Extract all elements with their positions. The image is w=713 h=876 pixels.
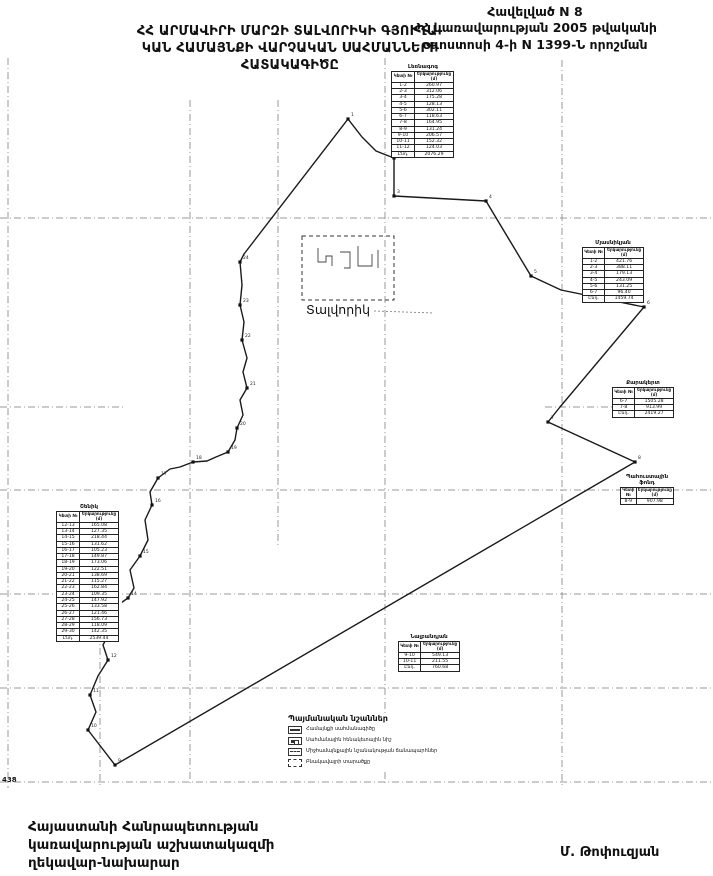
boundary-point-marker xyxy=(88,693,91,696)
table-header-row: Կետի №Երկարությունը (մ) xyxy=(399,642,460,653)
boundary-point-label: 21 xyxy=(250,381,256,387)
boundary-point-label: 18 xyxy=(196,455,202,461)
boundary-table-north: Լեռնագոգ Կետի №Երկարությունը (մ)1-2260.9… xyxy=(391,64,455,158)
boundary-point-label: 15 xyxy=(143,549,149,555)
boundary-table-east-mid: Քարակերտ Կետի №Երկարությունը (մ)6-71505.… xyxy=(612,380,674,418)
boundary-point-marker xyxy=(156,476,159,479)
boundary-point-label: 22 xyxy=(245,333,251,339)
point-number-header: Կետի № xyxy=(613,388,635,399)
boundary-point-marker xyxy=(240,338,243,341)
table-title: Շենիկ xyxy=(56,504,122,510)
table-row: Ընդ.2419.27 xyxy=(613,411,674,417)
segment-length-header: Երկարությունը (մ) xyxy=(80,512,119,523)
point-number-header: Կետի № xyxy=(621,488,637,499)
segment-length-header: Երկարությունը (մ) xyxy=(421,642,460,653)
boundary-point-marker xyxy=(86,728,89,731)
legend-label: Բնակավայրի տարածքը xyxy=(306,760,370,766)
boundary-point-marker xyxy=(392,194,395,197)
boundary-point-marker xyxy=(238,303,241,306)
boundary-point-marker xyxy=(484,199,487,202)
table-header-row: Կետի №Երկարությունը (մ) xyxy=(392,72,454,83)
boundary-point-marker xyxy=(226,450,229,453)
boundary-length-table: Կետի №Երկարությունը (մ)8-9907.98 xyxy=(620,487,674,505)
built-up-block-outline xyxy=(318,248,332,266)
boundary-length-table: Կետի №Երկարությունը (մ)6-71505.287-8913.… xyxy=(612,387,674,418)
built-up-block-outline xyxy=(340,252,350,268)
legend-item: Միջհամայնքային նշանակության ճանապարհներ xyxy=(288,748,448,756)
boundary-point-label: 19 xyxy=(231,445,237,451)
settlement-area-icon xyxy=(288,759,302,767)
point-number-cell: Ընդ. xyxy=(57,635,80,641)
legend-label: Միջհամայնքային նշանակության ճանապարհներ xyxy=(306,749,437,755)
boundary-point-label: 5 xyxy=(534,269,537,275)
legend-item: Բնակավայրի տարածքը xyxy=(288,759,448,767)
boundary-point-label: 10 xyxy=(91,723,97,729)
point-number-cell: Ընդ. xyxy=(399,665,421,671)
boundary-table-west: Շենիկ Կետի №Երկարությունը (մ)12-13165.08… xyxy=(56,504,122,642)
legend-title: Պայմանական նշաններ xyxy=(288,714,448,723)
segment-length-header: Երկարությունը (մ) xyxy=(415,72,454,83)
segment-length-cell: 907.98 xyxy=(636,498,673,504)
table-row: Ընդ.760.68 xyxy=(399,665,460,671)
benchmark-icon xyxy=(288,737,302,745)
boundary-length-table: Կետի №Երկարությունը (մ)12-13165.0813-141… xyxy=(56,511,119,642)
table-title: Քարակերտ xyxy=(612,380,674,386)
point-number-header: Կետի № xyxy=(583,248,605,259)
boundary-length-table: Կետի №Երկարությունը (մ)1-2421.762-3388.1… xyxy=(582,247,644,303)
segment-length-cell: 2419.27 xyxy=(635,411,674,417)
boundary-point-label: 23 xyxy=(243,298,249,304)
boundary-point-marker xyxy=(235,426,238,429)
segment-length-cell: 1459.74 xyxy=(605,296,644,302)
table-row: Ընդ.2076.29 xyxy=(392,151,454,157)
boundary-point-marker xyxy=(138,554,141,557)
boundary-point-label: 12 xyxy=(111,653,117,659)
segment-length-cell: 760.68 xyxy=(421,665,460,671)
point-number-header: Կետի № xyxy=(57,512,80,523)
boundary-point-marker xyxy=(113,763,116,766)
legend-item: Սահմանային հենակետային նիշ xyxy=(288,737,448,745)
boundary-point-marker xyxy=(245,386,248,389)
legend-label: Համայնքի սահմանագիծը xyxy=(306,727,375,733)
point-number-cell: Ընդ. xyxy=(613,411,635,417)
table-row: Ընդ.1459.74 xyxy=(583,296,644,302)
boundary-point-marker xyxy=(106,658,109,661)
built-up-block-outline xyxy=(358,246,372,266)
segment-length-header: Երկարությունը (մ) xyxy=(636,488,673,499)
table-header-row: Կետի №Երկարությունը (մ) xyxy=(613,388,674,399)
boundary-point-marker xyxy=(126,596,129,599)
boundary-point-marker xyxy=(191,460,194,463)
boundary-point-label: 8 xyxy=(638,455,641,461)
boundary-point-label: 7 xyxy=(551,415,554,421)
legend-label: Սահմանային հենակետային նիշ xyxy=(306,738,392,744)
boundary-table-east-upper: Մյասնիկյան Կետի №Երկարությունը (մ)1-2421… xyxy=(582,240,644,303)
boundary-point-label: 1 xyxy=(351,112,354,118)
boundary-point-label: 6 xyxy=(647,300,650,306)
segment-length-cell: 2076.29 xyxy=(415,151,454,157)
table-header-row: Կետի №Երկարությունը (մ) xyxy=(57,512,119,523)
boundary-point-label: 3 xyxy=(397,189,400,195)
boundary-point-marker xyxy=(238,260,241,263)
boundary-point-marker xyxy=(150,503,153,506)
settlement-label: Տալվորիկ xyxy=(306,302,370,317)
boundary-point-label: 14 xyxy=(131,591,137,597)
point-number-cell: 8-9 xyxy=(621,498,637,504)
boundary-length-table: Կետի №Երկարությունը (մ)1-2260.972-3312.0… xyxy=(391,71,454,158)
table-title: Մյասնիկյան xyxy=(582,240,644,246)
boundary-point-label: 11 xyxy=(93,688,99,694)
boundary-point-marker xyxy=(546,420,549,423)
table-row: Ընդ.2539.44 xyxy=(57,635,119,641)
boundary-point-label: 4 xyxy=(489,194,492,200)
road-icon xyxy=(288,748,302,756)
boundary-point-marker xyxy=(633,460,636,463)
boundary-table-south: Նալբանդյան Կետի №Երկարությունը (մ)9-1054… xyxy=(398,634,460,672)
segment-length-header: Երկարությունը (մ) xyxy=(605,248,644,259)
boundary-point-label: 16 xyxy=(155,498,161,504)
legend-items: Համայնքի սահմանագիծըՍահմանային հենակետայ… xyxy=(288,726,448,767)
boundary-point-label: 20 xyxy=(240,421,246,427)
segment-length-header: Երկարությունը (մ) xyxy=(635,388,674,399)
community-boundary-line xyxy=(88,119,644,765)
point-number-cell: Ընդ. xyxy=(392,151,415,157)
segment-length-cell: 2539.44 xyxy=(80,635,119,641)
boundary-point-marker xyxy=(529,274,532,277)
boundary-point-label: 9 xyxy=(118,758,121,764)
table-header-row: Կետի №Երկարությունը (մ) xyxy=(621,488,674,499)
point-number-cell: Ընդ. xyxy=(583,296,605,302)
legend-item: Համայնքի սահմանագիծը xyxy=(288,726,448,734)
boundary-table-east-small: Պահուստային ֆոնդ Կետի №Երկարությունը (մ)… xyxy=(620,474,674,505)
point-number-header: Կետի № xyxy=(399,642,421,653)
table-title: Պահուստային ֆոնդ xyxy=(620,474,674,486)
boundary-point-marker xyxy=(642,305,645,308)
point-number-header: Կետի № xyxy=(392,72,415,83)
boundary-length-table: Կետի №Երկարությունը (մ)9-10549.1310-1121… xyxy=(398,641,460,672)
leader-dotted-line xyxy=(374,311,434,313)
map-legend: Պայմանական նշաններ Համայնքի սահմանագիծըՍ… xyxy=(288,714,448,770)
boundary-point-marker xyxy=(346,117,349,120)
boundary-point-label: 24 xyxy=(243,255,249,261)
table-title: Լեռնագոգ xyxy=(391,64,455,70)
table-title: Նալբանդյան xyxy=(398,634,460,640)
boundary-point-label: 17 xyxy=(161,471,167,477)
table-row: 8-9907.98 xyxy=(621,498,674,504)
community-boundary-icon xyxy=(288,726,302,734)
scanned-map-page: Հավելված N 8 ՀՀ կառավարության 2005 թվակա… xyxy=(0,0,713,876)
table-header-row: Կետի №Երկարությունը (մ) xyxy=(583,248,644,259)
